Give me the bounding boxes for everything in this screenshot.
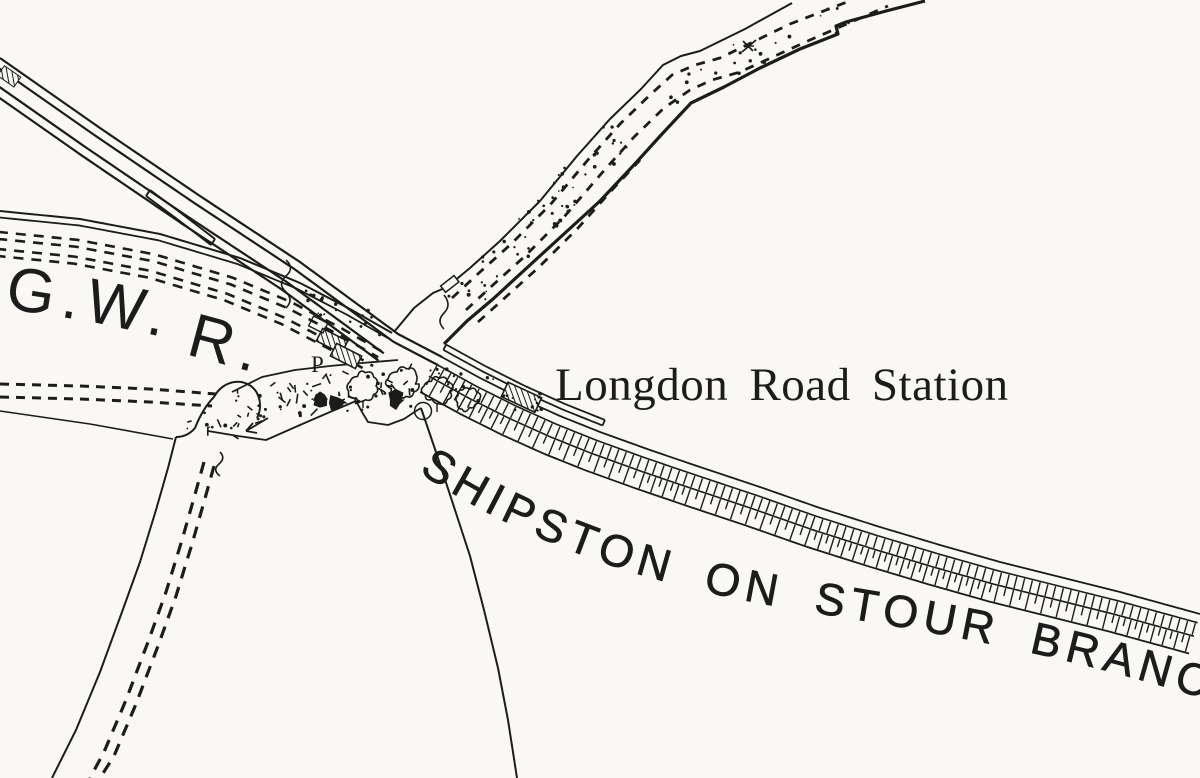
map-canvas: G. W. R. Longdon Road Station SHIPSTON O… (0, 0, 1200, 778)
branch-line-label: SHIPSTON ON STOUR BRANCH (0, 0, 1200, 710)
ordnance-survey-map: G. W. R. Longdon Road Station SHIPSTON O… (0, 0, 1200, 778)
station-name-label: Longdon Road Station (555, 359, 1009, 411)
gwr-letter-g: G. (2, 254, 93, 335)
pump-label: P (311, 352, 324, 377)
map-labels: G. W. R. Longdon Road Station SHIPSTON O… (0, 0, 1200, 710)
gwr-letter-r: R. (181, 301, 274, 388)
gwr-letter-w: W. (80, 266, 181, 352)
